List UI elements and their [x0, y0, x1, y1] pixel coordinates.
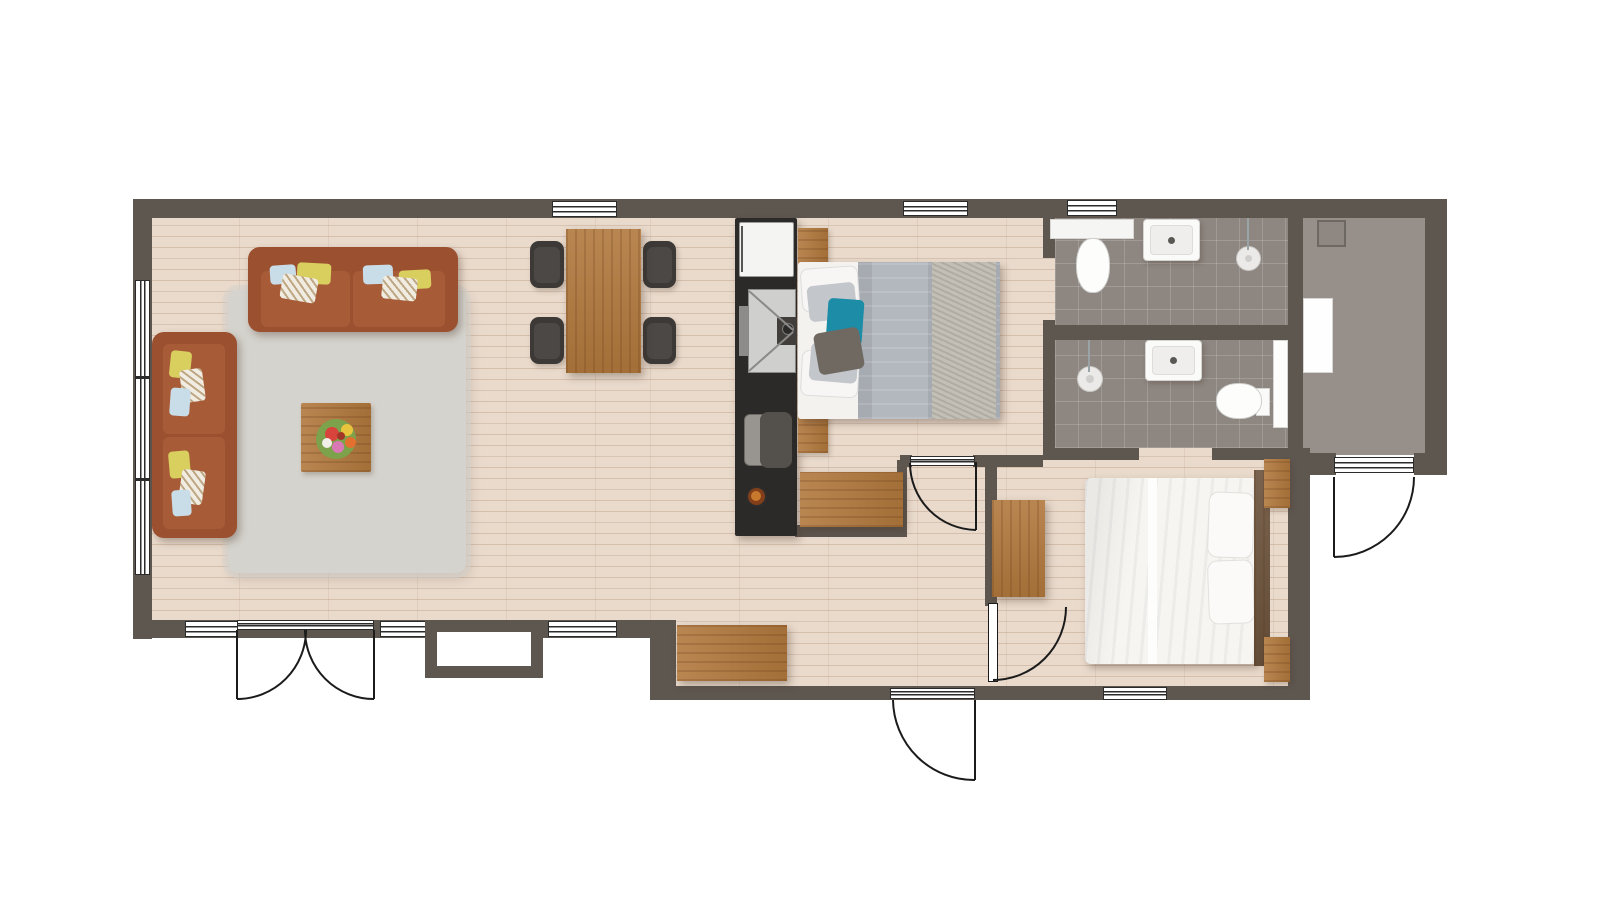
- entry-door-panel: [1303, 298, 1333, 373]
- window-mullion-2: [135, 478, 150, 481]
- refrigerator: [739, 222, 794, 277]
- pillow-blue-4: [171, 489, 192, 516]
- bed1-pillow-dark: [813, 326, 866, 375]
- wall-bath-bottom-left: [1043, 448, 1139, 460]
- dishwasher-dark: [760, 412, 792, 468]
- window-bedroom2-bottom: [1103, 687, 1167, 700]
- bed1-duvet-light-panel: [872, 262, 928, 419]
- bedroom2-dresser: [992, 500, 1045, 597]
- hall-door-threshold: [890, 688, 975, 699]
- kitchen-control-strip: [739, 306, 748, 356]
- nightstand-bed2-top: [1264, 459, 1290, 508]
- dining-chair-1-seat: [534, 247, 560, 283]
- bathroom1-sink-drain: [1168, 237, 1175, 244]
- bedroom1-door-threshold: [910, 456, 975, 466]
- entry-door-threshold: [1334, 457, 1414, 473]
- dining-chair-4-seat: [647, 323, 672, 359]
- bathroom2-door-panel: [1273, 340, 1288, 428]
- bedroom1-dresser: [800, 472, 903, 527]
- bathroom2-toilet-bowl: [1216, 383, 1262, 419]
- wall-bath-divider: [1043, 325, 1290, 340]
- window-bottom-living-1: [185, 621, 238, 637]
- wall-bedroom2-right: [1288, 453, 1310, 700]
- floor-plan-canvas: [0, 0, 1600, 900]
- cooking-pot-food: [751, 491, 761, 501]
- bouquet-pink: [332, 441, 344, 453]
- nightstand-bed2-bottom: [1264, 637, 1290, 682]
- bed2-duvet-crease: [1148, 478, 1157, 664]
- french-door-track: [237, 620, 374, 630]
- wall-top: [133, 199, 1447, 218]
- bouquet-orange: [345, 437, 356, 448]
- bathroom1-shelf: [1050, 219, 1134, 239]
- bouquet-maroon: [337, 432, 345, 440]
- window-bottom-living-2: [380, 621, 428, 637]
- french-door-right-arc: [305, 630, 374, 699]
- bathroom1-toilet-bowl: [1076, 238, 1110, 293]
- shower1-head-center: [1245, 255, 1252, 262]
- french-door-left-arc: [237, 630, 306, 699]
- cooktop-burner: [782, 323, 794, 335]
- wall-entry-left: [1288, 218, 1303, 453]
- window-top-living: [552, 201, 617, 217]
- pillow-blue-3: [169, 387, 191, 416]
- dining-chair-3-seat: [647, 247, 672, 283]
- window-top-bathroom: [1067, 200, 1117, 216]
- bed1-throw-blanket: [932, 262, 996, 419]
- hall-exterior-door-arc: [893, 700, 975, 780]
- pillow-striped-2: [381, 275, 418, 302]
- bathroom2-sink-drain: [1170, 357, 1177, 364]
- bed2-pillow-bottom: [1207, 559, 1255, 625]
- dining-table: [566, 229, 641, 373]
- wall-bath-left-bottom: [1043, 320, 1055, 460]
- entry-door-arc: [1334, 477, 1414, 557]
- window-top-bedroom1: [903, 201, 968, 216]
- window-mullion-1: [135, 376, 150, 379]
- wall-bottom-lower: [650, 686, 1310, 700]
- wall-bedroom1-right: [973, 455, 1043, 467]
- bedroom2-door-leaf-closed: [988, 603, 998, 682]
- window-bottom-living-3: [548, 621, 617, 637]
- refrigerator-handle: [741, 226, 743, 272]
- window-left-wall: [135, 280, 150, 575]
- entry-duct-shaft: [1317, 220, 1346, 247]
- shower2-head-center: [1086, 375, 1094, 383]
- bed2-pillow-top: [1207, 491, 1255, 559]
- bouquet-white: [322, 438, 332, 448]
- bay-window-box: [425, 620, 543, 678]
- wall-right: [1425, 199, 1447, 475]
- hallway-bench: [677, 625, 787, 681]
- dining-chair-2-seat: [534, 323, 560, 359]
